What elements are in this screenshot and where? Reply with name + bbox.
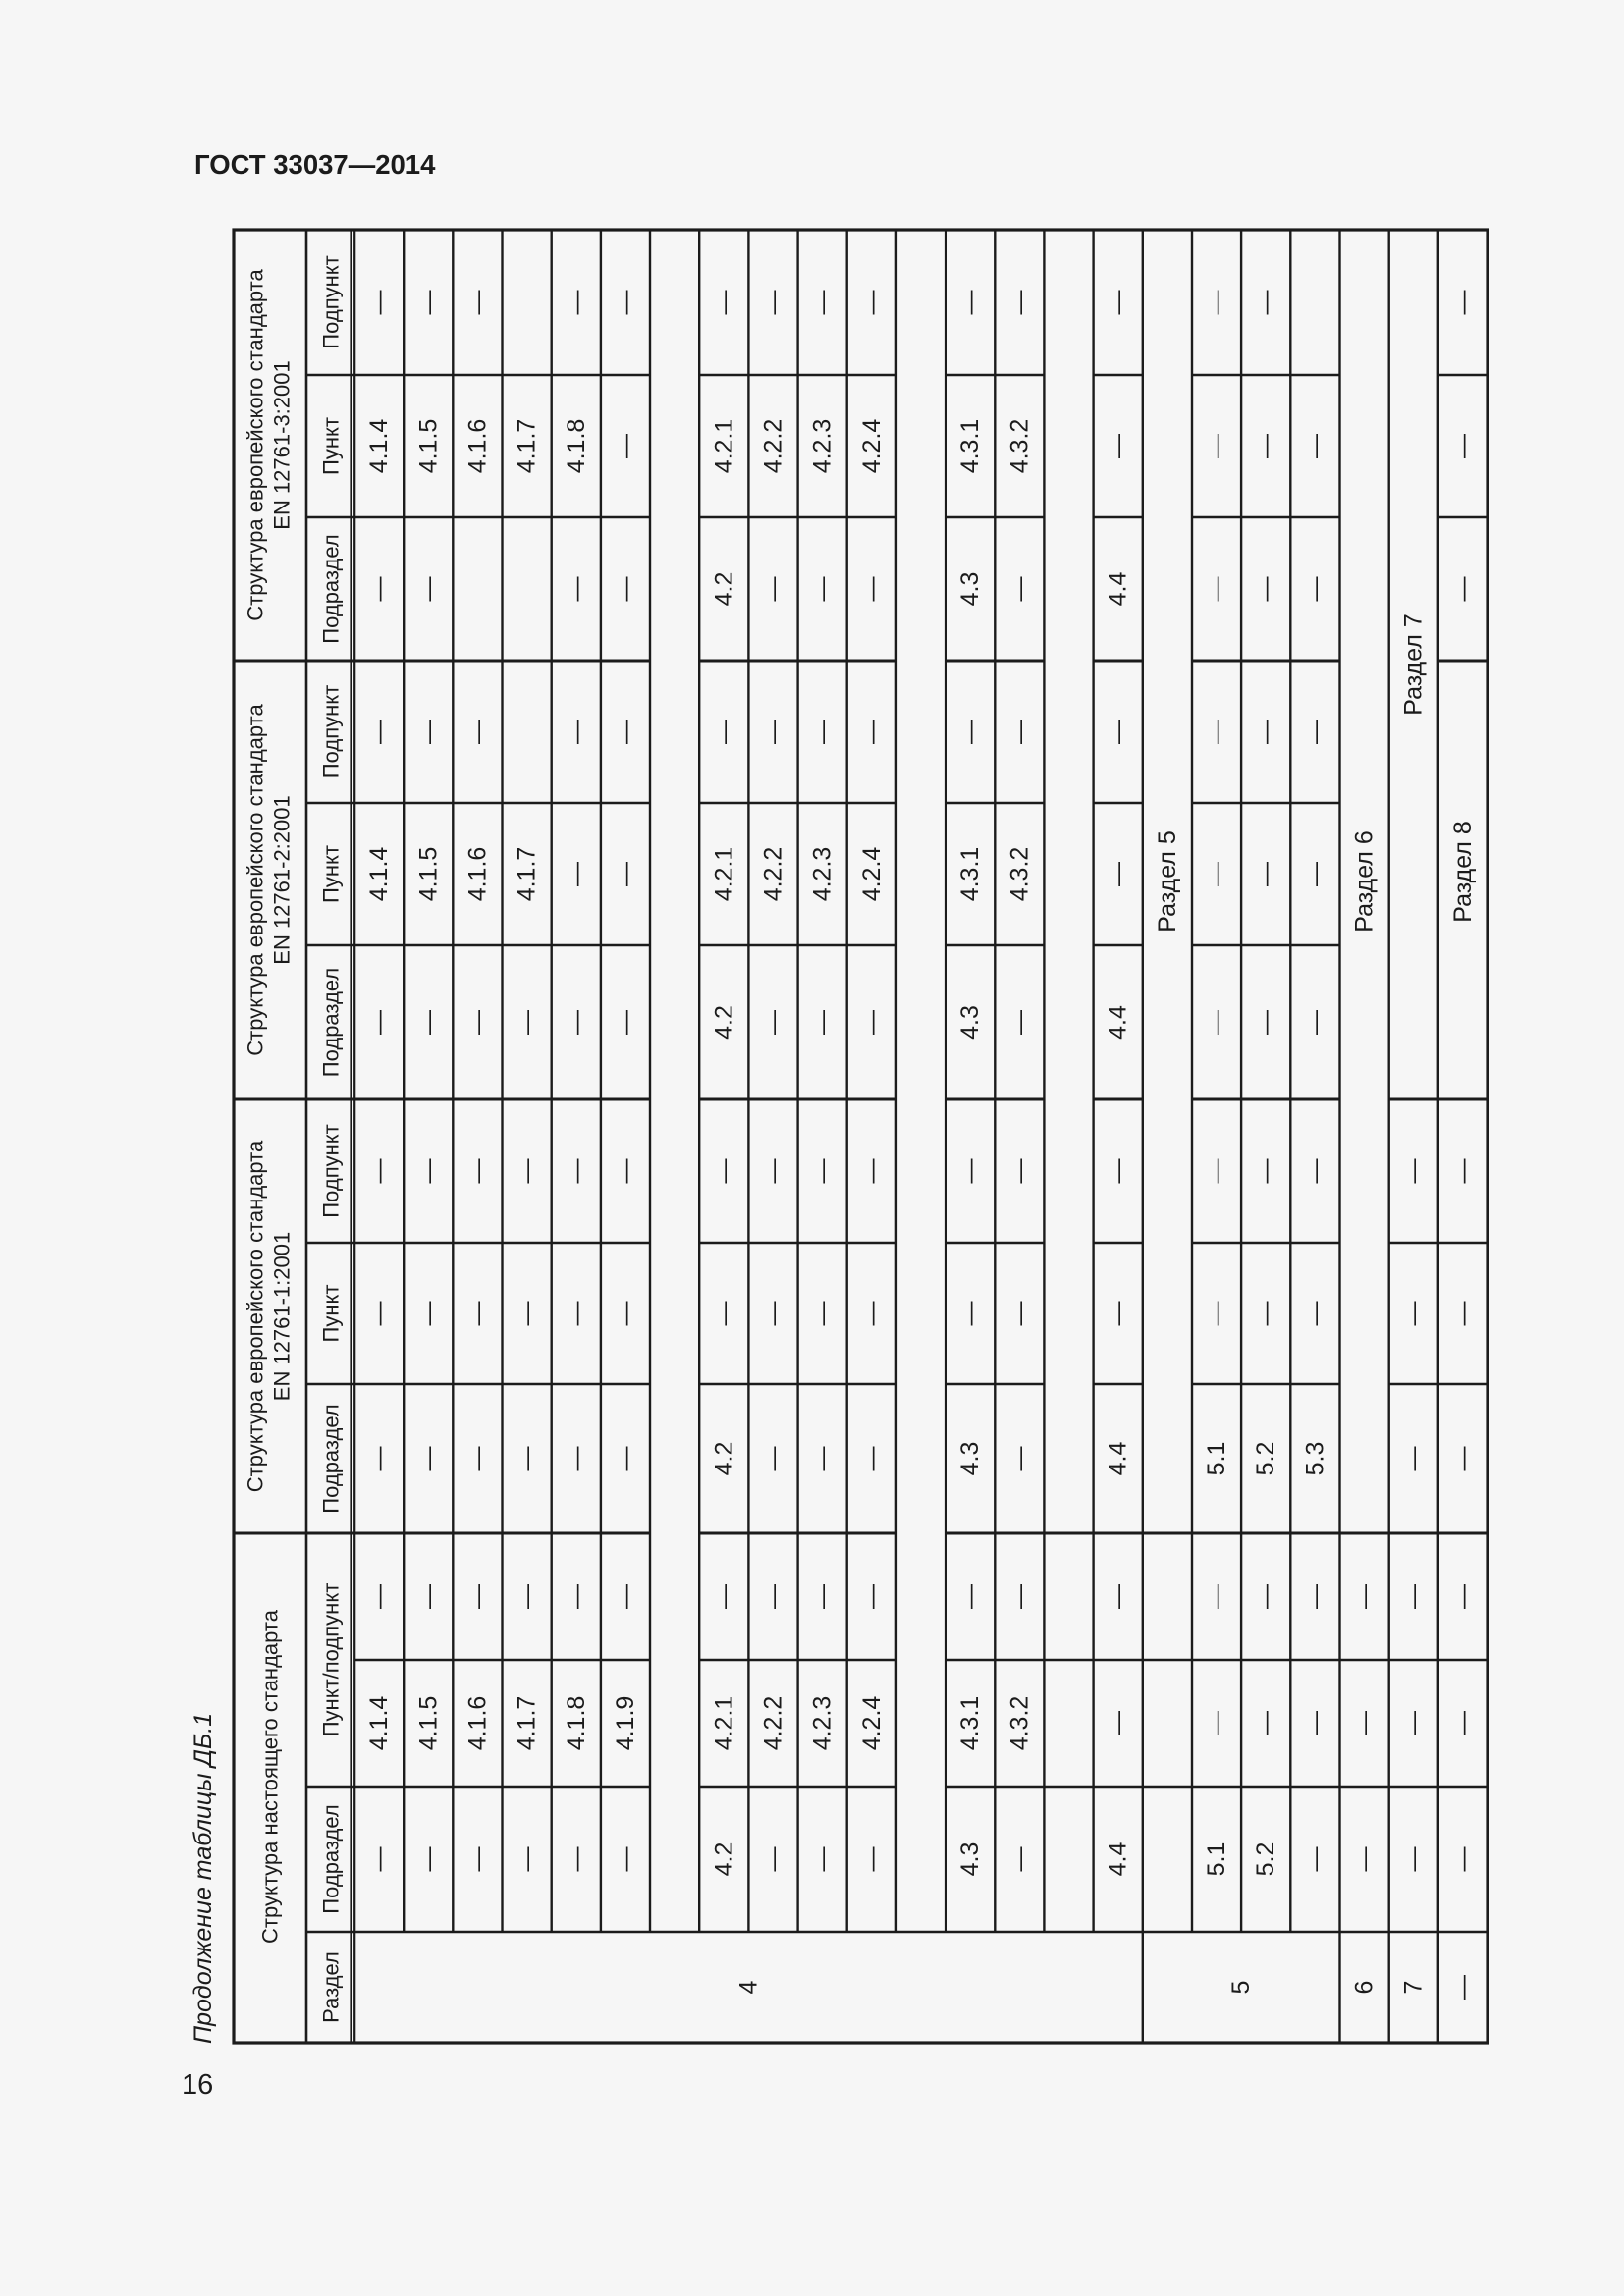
svg-text:—: — <box>1252 1711 1279 1735</box>
svg-text:—: — <box>760 291 787 315</box>
svg-text:4.1.8: 4.1.8 <box>563 1696 590 1751</box>
svg-text:—: — <box>1301 1584 1328 1609</box>
svg-text:Структура европейского стандар: Структура европейского стандарта <box>244 704 268 1056</box>
svg-text:—: — <box>1449 1975 1477 2000</box>
svg-text:—: — <box>463 291 491 315</box>
svg-text:—: — <box>463 1847 491 1872</box>
svg-text:4.3: 4.3 <box>956 1442 984 1476</box>
svg-text:4.2.4: 4.2.4 <box>858 419 886 474</box>
svg-text:—: — <box>1301 1302 1328 1326</box>
svg-text:—: — <box>760 1584 787 1609</box>
svg-text:4.2.4: 4.2.4 <box>858 1696 886 1751</box>
svg-text:4.1.4: 4.1.4 <box>365 847 393 902</box>
svg-text:—: — <box>1005 1302 1033 1326</box>
svg-text:—: — <box>760 1159 787 1184</box>
svg-text:—: — <box>809 1302 837 1326</box>
svg-text:4.1.7: 4.1.7 <box>514 1696 541 1751</box>
svg-text:Структура настоящего стандарта: Структура настоящего стандарта <box>258 1609 283 1944</box>
svg-text:—: — <box>514 1010 541 1035</box>
svg-text:Пункт: Пункт <box>319 417 344 475</box>
svg-text:—: — <box>612 1847 639 1872</box>
svg-text:—: — <box>1252 1302 1279 1326</box>
svg-text:—: — <box>1351 1711 1379 1735</box>
svg-text:—: — <box>710 1584 737 1609</box>
svg-text:—: — <box>760 1302 787 1326</box>
svg-text:Раздел: Раздел <box>319 1951 344 2023</box>
svg-text:—: — <box>1105 1711 1132 1735</box>
svg-text:—: — <box>1005 1447 1033 1471</box>
svg-text:5.2: 5.2 <box>1252 1842 1279 1877</box>
svg-text:—: — <box>1449 434 1477 458</box>
svg-text:Пункт/подпункт: Пункт/подпункт <box>319 1583 344 1737</box>
svg-text:—: — <box>1105 862 1132 886</box>
svg-text:4.3.1: 4.3.1 <box>956 419 984 474</box>
svg-text:Подраздел: Подраздел <box>319 968 344 1077</box>
svg-text:—: — <box>514 1584 541 1609</box>
svg-text:—: — <box>563 1447 590 1471</box>
svg-text:4.3: 4.3 <box>956 1842 984 1877</box>
svg-text:—: — <box>809 1447 837 1471</box>
svg-text:4.1.5: 4.1.5 <box>414 419 442 474</box>
svg-text:ГОСТ 33037—2014: ГОСТ 33037—2014 <box>194 149 436 180</box>
svg-text:—: — <box>365 1010 393 1035</box>
svg-text:4.2.3: 4.2.3 <box>809 847 837 902</box>
svg-text:Пункт: Пункт <box>319 845 344 903</box>
svg-text:4.4: 4.4 <box>1105 572 1132 607</box>
svg-text:4.1.5: 4.1.5 <box>414 847 442 902</box>
svg-text:EN 12761-2:2001: EN 12761-2:2001 <box>270 795 295 964</box>
svg-text:5.2: 5.2 <box>1252 1442 1279 1476</box>
svg-text:—: — <box>956 1584 984 1609</box>
svg-text:4.2.2: 4.2.2 <box>760 419 787 474</box>
svg-text:—: — <box>1203 1159 1230 1184</box>
svg-text:—: — <box>1252 1010 1279 1035</box>
svg-text:Пункт: Пункт <box>319 1285 344 1343</box>
svg-text:—: — <box>1252 434 1279 458</box>
svg-text:—: — <box>414 577 442 602</box>
svg-text:—: — <box>858 577 886 602</box>
svg-text:—: — <box>414 1847 442 1872</box>
svg-text:—: — <box>858 1302 886 1326</box>
svg-text:4.2.2: 4.2.2 <box>760 847 787 902</box>
svg-text:—: — <box>1252 720 1279 744</box>
svg-text:—: — <box>365 720 393 744</box>
svg-text:—: — <box>760 720 787 744</box>
svg-text:Подраздел: Подраздел <box>319 1404 344 1513</box>
svg-text:—: — <box>365 1159 393 1184</box>
svg-text:—: — <box>563 1584 590 1609</box>
svg-text:—: — <box>612 1584 639 1609</box>
svg-text:—: — <box>1449 1447 1477 1471</box>
svg-text:—: — <box>1301 862 1328 886</box>
svg-text:—: — <box>760 1447 787 1471</box>
svg-text:—: — <box>1301 434 1328 458</box>
svg-text:4.2.3: 4.2.3 <box>809 419 837 474</box>
svg-text:—: — <box>956 1159 984 1184</box>
svg-text:Структура европейского стандар: Структура европейского стандарта <box>244 269 268 621</box>
svg-text:—: — <box>612 720 639 744</box>
svg-text:—: — <box>1105 1302 1132 1326</box>
svg-text:—: — <box>414 1010 442 1035</box>
svg-text:—: — <box>1400 1159 1428 1184</box>
svg-text:—: — <box>1005 1159 1033 1184</box>
svg-text:EN 12761-3:2001: EN 12761-3:2001 <box>270 360 295 529</box>
svg-text:—: — <box>1203 1584 1230 1609</box>
svg-text:4.3.2: 4.3.2 <box>1005 419 1033 474</box>
svg-text:—: — <box>1449 1711 1477 1735</box>
svg-text:—: — <box>1105 434 1132 458</box>
svg-text:—: — <box>563 1847 590 1872</box>
svg-text:5.3: 5.3 <box>1301 1442 1328 1476</box>
svg-text:—: — <box>858 1847 886 1872</box>
svg-text:—: — <box>1252 1159 1279 1184</box>
svg-text:—: — <box>858 1159 886 1184</box>
svg-text:—: — <box>612 291 639 315</box>
svg-text:—: — <box>414 291 442 315</box>
svg-text:—: — <box>1005 291 1033 315</box>
svg-text:—: — <box>858 1010 886 1035</box>
svg-text:—: — <box>563 291 590 315</box>
svg-text:4.3.2: 4.3.2 <box>1005 847 1033 902</box>
svg-text:4.2.1: 4.2.1 <box>710 847 737 902</box>
svg-text:—: — <box>612 1447 639 1471</box>
svg-text:—: — <box>1005 1847 1033 1872</box>
svg-text:4.2.2: 4.2.2 <box>760 1696 787 1751</box>
svg-text:—: — <box>612 434 639 458</box>
svg-text:—: — <box>1203 434 1230 458</box>
svg-text:Раздел 8: Раздел 8 <box>1449 821 1477 922</box>
svg-text:—: — <box>1105 291 1132 315</box>
svg-text:Подраздел: Подраздел <box>319 534 344 643</box>
svg-text:—: — <box>463 1302 491 1326</box>
svg-text:—: — <box>710 291 737 315</box>
svg-text:—: — <box>1005 1584 1033 1609</box>
svg-text:—: — <box>1203 720 1230 744</box>
svg-text:4.1.6: 4.1.6 <box>463 847 491 902</box>
svg-text:—: — <box>760 577 787 602</box>
svg-text:—: — <box>365 1584 393 1609</box>
svg-text:4.1.9: 4.1.9 <box>612 1696 639 1751</box>
svg-text:4.1.7: 4.1.7 <box>514 847 541 902</box>
svg-text:—: — <box>514 1159 541 1184</box>
svg-text:4.3.2: 4.3.2 <box>1005 1696 1033 1751</box>
svg-text:—: — <box>1005 577 1033 602</box>
svg-text:4.1.4: 4.1.4 <box>365 1696 393 1751</box>
svg-text:16: 16 <box>182 2069 213 2101</box>
svg-text:Раздел 7: Раздел 7 <box>1400 614 1428 715</box>
svg-text:—: — <box>1301 1711 1328 1735</box>
svg-text:4.2: 4.2 <box>710 1442 737 1476</box>
svg-text:—: — <box>414 1159 442 1184</box>
svg-text:EN 12761-1:2001: EN 12761-1:2001 <box>270 1232 295 1401</box>
svg-text:—: — <box>858 1447 886 1471</box>
svg-text:—: — <box>1252 577 1279 602</box>
svg-text:Продолжение таблицы ДБ.1: Продолжение таблицы ДБ.1 <box>189 1713 217 2044</box>
svg-text:—: — <box>463 1447 491 1471</box>
svg-text:4: 4 <box>734 1980 762 1994</box>
svg-text:—: — <box>1301 577 1328 602</box>
svg-text:Раздел 5: Раздел 5 <box>1154 830 1181 932</box>
svg-text:—: — <box>1400 1447 1428 1471</box>
svg-text:Раздел 6: Раздел 6 <box>1351 830 1379 932</box>
svg-text:—: — <box>1203 291 1230 315</box>
svg-text:4.4: 4.4 <box>1105 1005 1132 1040</box>
svg-text:—: — <box>1005 720 1033 744</box>
svg-text:—: — <box>365 291 393 315</box>
svg-text:Структура европейского стандар: Структура европейского стандарта <box>244 1140 268 1492</box>
svg-text:—: — <box>1301 1847 1328 1872</box>
svg-text:Подраздел: Подраздел <box>319 1804 344 1913</box>
svg-text:4.2.4: 4.2.4 <box>858 847 886 902</box>
svg-text:—: — <box>1400 1302 1428 1326</box>
svg-text:4.2: 4.2 <box>710 1842 737 1877</box>
svg-text:—: — <box>1252 291 1279 315</box>
svg-text:—: — <box>1449 1159 1477 1184</box>
svg-text:—: — <box>760 1847 787 1872</box>
svg-text:—: — <box>1449 291 1477 315</box>
svg-text:—: — <box>563 862 590 886</box>
svg-text:—: — <box>1252 862 1279 886</box>
svg-text:—: — <box>365 1847 393 1872</box>
svg-text:5: 5 <box>1227 1981 1255 1995</box>
svg-text:—: — <box>1005 1010 1033 1035</box>
svg-text:4.3.1: 4.3.1 <box>956 847 984 902</box>
svg-text:—: — <box>809 1010 837 1035</box>
svg-text:—: — <box>414 720 442 744</box>
svg-text:—: — <box>1449 1847 1477 1872</box>
svg-text:6: 6 <box>1351 1981 1379 1995</box>
svg-text:—: — <box>1301 1010 1328 1035</box>
svg-text:5.1: 5.1 <box>1203 1442 1230 1476</box>
svg-text:—: — <box>365 577 393 602</box>
svg-text:—: — <box>563 1010 590 1035</box>
svg-text:—: — <box>1203 1010 1230 1035</box>
svg-text:—: — <box>1351 1584 1379 1609</box>
svg-text:—: — <box>1400 1847 1428 1872</box>
svg-text:4.2: 4.2 <box>710 1005 737 1040</box>
svg-text:—: — <box>563 577 590 602</box>
svg-text:4.3.1: 4.3.1 <box>956 1696 984 1751</box>
svg-text:—: — <box>858 291 886 315</box>
svg-text:—: — <box>809 1584 837 1609</box>
svg-text:Подпункт: Подпункт <box>319 1124 344 1217</box>
svg-text:4.1.7: 4.1.7 <box>514 419 541 474</box>
svg-text:—: — <box>956 291 984 315</box>
svg-text:—: — <box>809 291 837 315</box>
svg-text:—: — <box>1252 1584 1279 1609</box>
svg-text:—: — <box>612 1159 639 1184</box>
svg-text:—: — <box>414 1584 442 1609</box>
svg-text:4.1.8: 4.1.8 <box>563 419 590 474</box>
svg-text:4.2.3: 4.2.3 <box>809 1696 837 1751</box>
svg-text:—: — <box>414 1302 442 1326</box>
svg-text:—: — <box>563 1302 590 1326</box>
svg-text:—: — <box>612 577 639 602</box>
svg-text:—: — <box>514 1447 541 1471</box>
svg-text:—: — <box>956 1302 984 1326</box>
svg-text:—: — <box>463 1584 491 1609</box>
svg-text:—: — <box>1203 1711 1230 1735</box>
svg-text:—: — <box>1351 1847 1379 1872</box>
svg-text:4.1.4: 4.1.4 <box>365 419 393 474</box>
svg-text:—: — <box>1301 720 1328 744</box>
svg-text:4.3: 4.3 <box>956 572 984 607</box>
svg-text:—: — <box>365 1447 393 1471</box>
svg-text:Подпункт: Подпункт <box>319 685 344 778</box>
svg-text:—: — <box>1400 1584 1428 1609</box>
svg-text:—: — <box>463 720 491 744</box>
svg-text:—: — <box>414 1447 442 1471</box>
svg-text:—: — <box>514 1302 541 1326</box>
svg-text:4.2.1: 4.2.1 <box>710 1696 737 1751</box>
svg-text:—: — <box>612 1010 639 1035</box>
svg-text:—: — <box>710 1159 737 1184</box>
svg-text:—: — <box>1105 720 1132 744</box>
svg-text:—: — <box>710 720 737 744</box>
svg-text:—: — <box>760 1010 787 1035</box>
svg-text:4.3: 4.3 <box>956 1005 984 1040</box>
svg-text:—: — <box>563 1159 590 1184</box>
svg-text:—: — <box>809 577 837 602</box>
svg-text:—: — <box>463 1010 491 1035</box>
svg-text:—: — <box>514 1847 541 1872</box>
svg-text:—: — <box>809 720 837 744</box>
svg-text:—: — <box>1105 1584 1132 1609</box>
svg-text:4.1.6: 4.1.6 <box>463 419 491 474</box>
svg-text:4.2.1: 4.2.1 <box>710 419 737 474</box>
svg-text:—: — <box>1301 1159 1328 1184</box>
svg-text:—: — <box>809 1159 837 1184</box>
svg-text:—: — <box>710 1302 737 1326</box>
svg-text:—: — <box>809 1847 837 1872</box>
svg-text:—: — <box>612 862 639 886</box>
svg-text:—: — <box>1203 577 1230 602</box>
svg-text:4.2: 4.2 <box>710 572 737 607</box>
svg-text:—: — <box>1203 1302 1230 1326</box>
svg-text:4.1.6: 4.1.6 <box>463 1696 491 1751</box>
svg-text:7: 7 <box>1400 1981 1428 1995</box>
svg-text:—: — <box>463 1159 491 1184</box>
svg-text:—: — <box>1203 862 1230 886</box>
svg-text:5.1: 5.1 <box>1203 1842 1230 1877</box>
svg-text:—: — <box>1449 1302 1477 1326</box>
svg-text:4.4: 4.4 <box>1105 1442 1132 1476</box>
svg-text:Подпункт: Подпункт <box>319 255 344 348</box>
svg-text:—: — <box>1449 577 1477 602</box>
svg-text:—: — <box>563 720 590 744</box>
svg-text:—: — <box>1449 1584 1477 1609</box>
svg-text:—: — <box>612 1302 639 1326</box>
svg-text:—: — <box>1400 1711 1428 1735</box>
svg-text:—: — <box>365 1302 393 1326</box>
svg-text:4.4: 4.4 <box>1105 1842 1132 1877</box>
svg-text:—: — <box>858 1584 886 1609</box>
svg-text:—: — <box>1105 1159 1132 1184</box>
svg-text:—: — <box>956 720 984 744</box>
svg-text:4.1.5: 4.1.5 <box>414 1696 442 1751</box>
svg-text:—: — <box>858 720 886 744</box>
